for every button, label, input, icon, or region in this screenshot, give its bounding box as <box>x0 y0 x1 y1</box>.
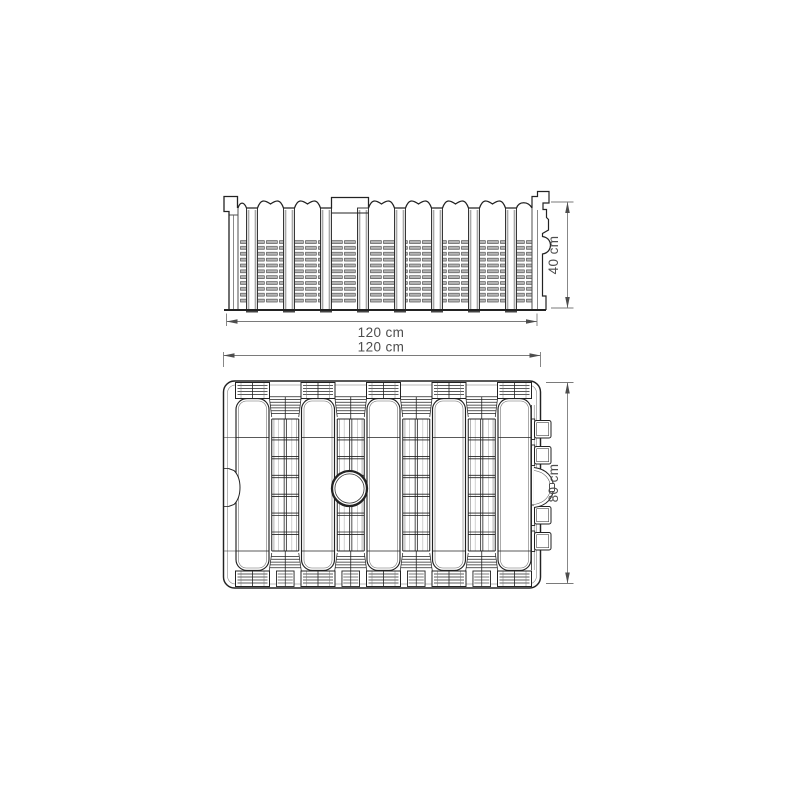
drawing-canvas: 120 cm 120 cm 40 cm 80 cm <box>0 0 800 800</box>
central-opening-circle <box>332 471 367 506</box>
front-width-label: 120 cm <box>358 325 405 340</box>
front-height-label: 40 cm <box>546 236 561 275</box>
front-elevation-view <box>224 192 551 313</box>
plan-height-label: 80 cm <box>546 464 561 503</box>
left-end-cap <box>224 197 238 311</box>
plan-width-label: 120 cm <box>358 340 405 355</box>
technical-drawing-svg: 120 cm 120 cm 40 cm 80 cm <box>0 0 800 800</box>
top-plan-view <box>224 381 555 588</box>
wavy-top-edge <box>238 198 532 209</box>
